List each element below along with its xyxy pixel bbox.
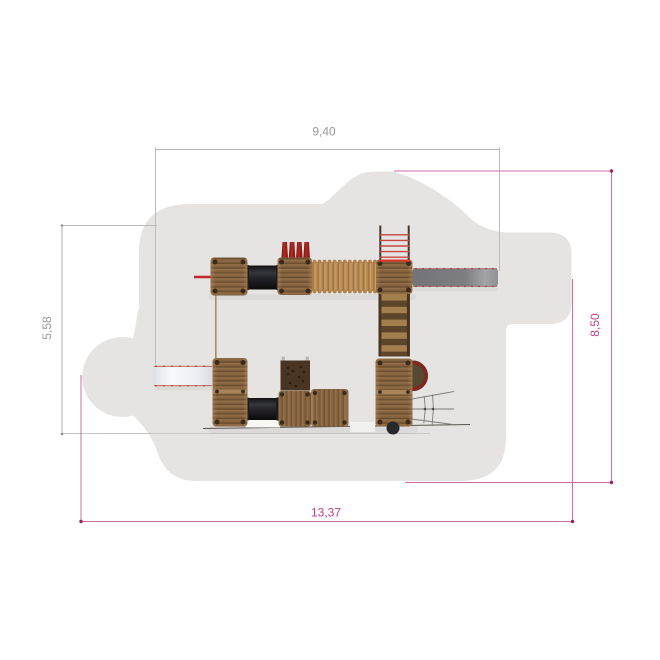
svg-text:8,50: 8,50 bbox=[588, 313, 602, 337]
svg-text:9,40: 9,40 bbox=[312, 125, 336, 139]
svg-text:13,37: 13,37 bbox=[311, 506, 341, 520]
svg-text:5,58: 5,58 bbox=[40, 316, 54, 340]
